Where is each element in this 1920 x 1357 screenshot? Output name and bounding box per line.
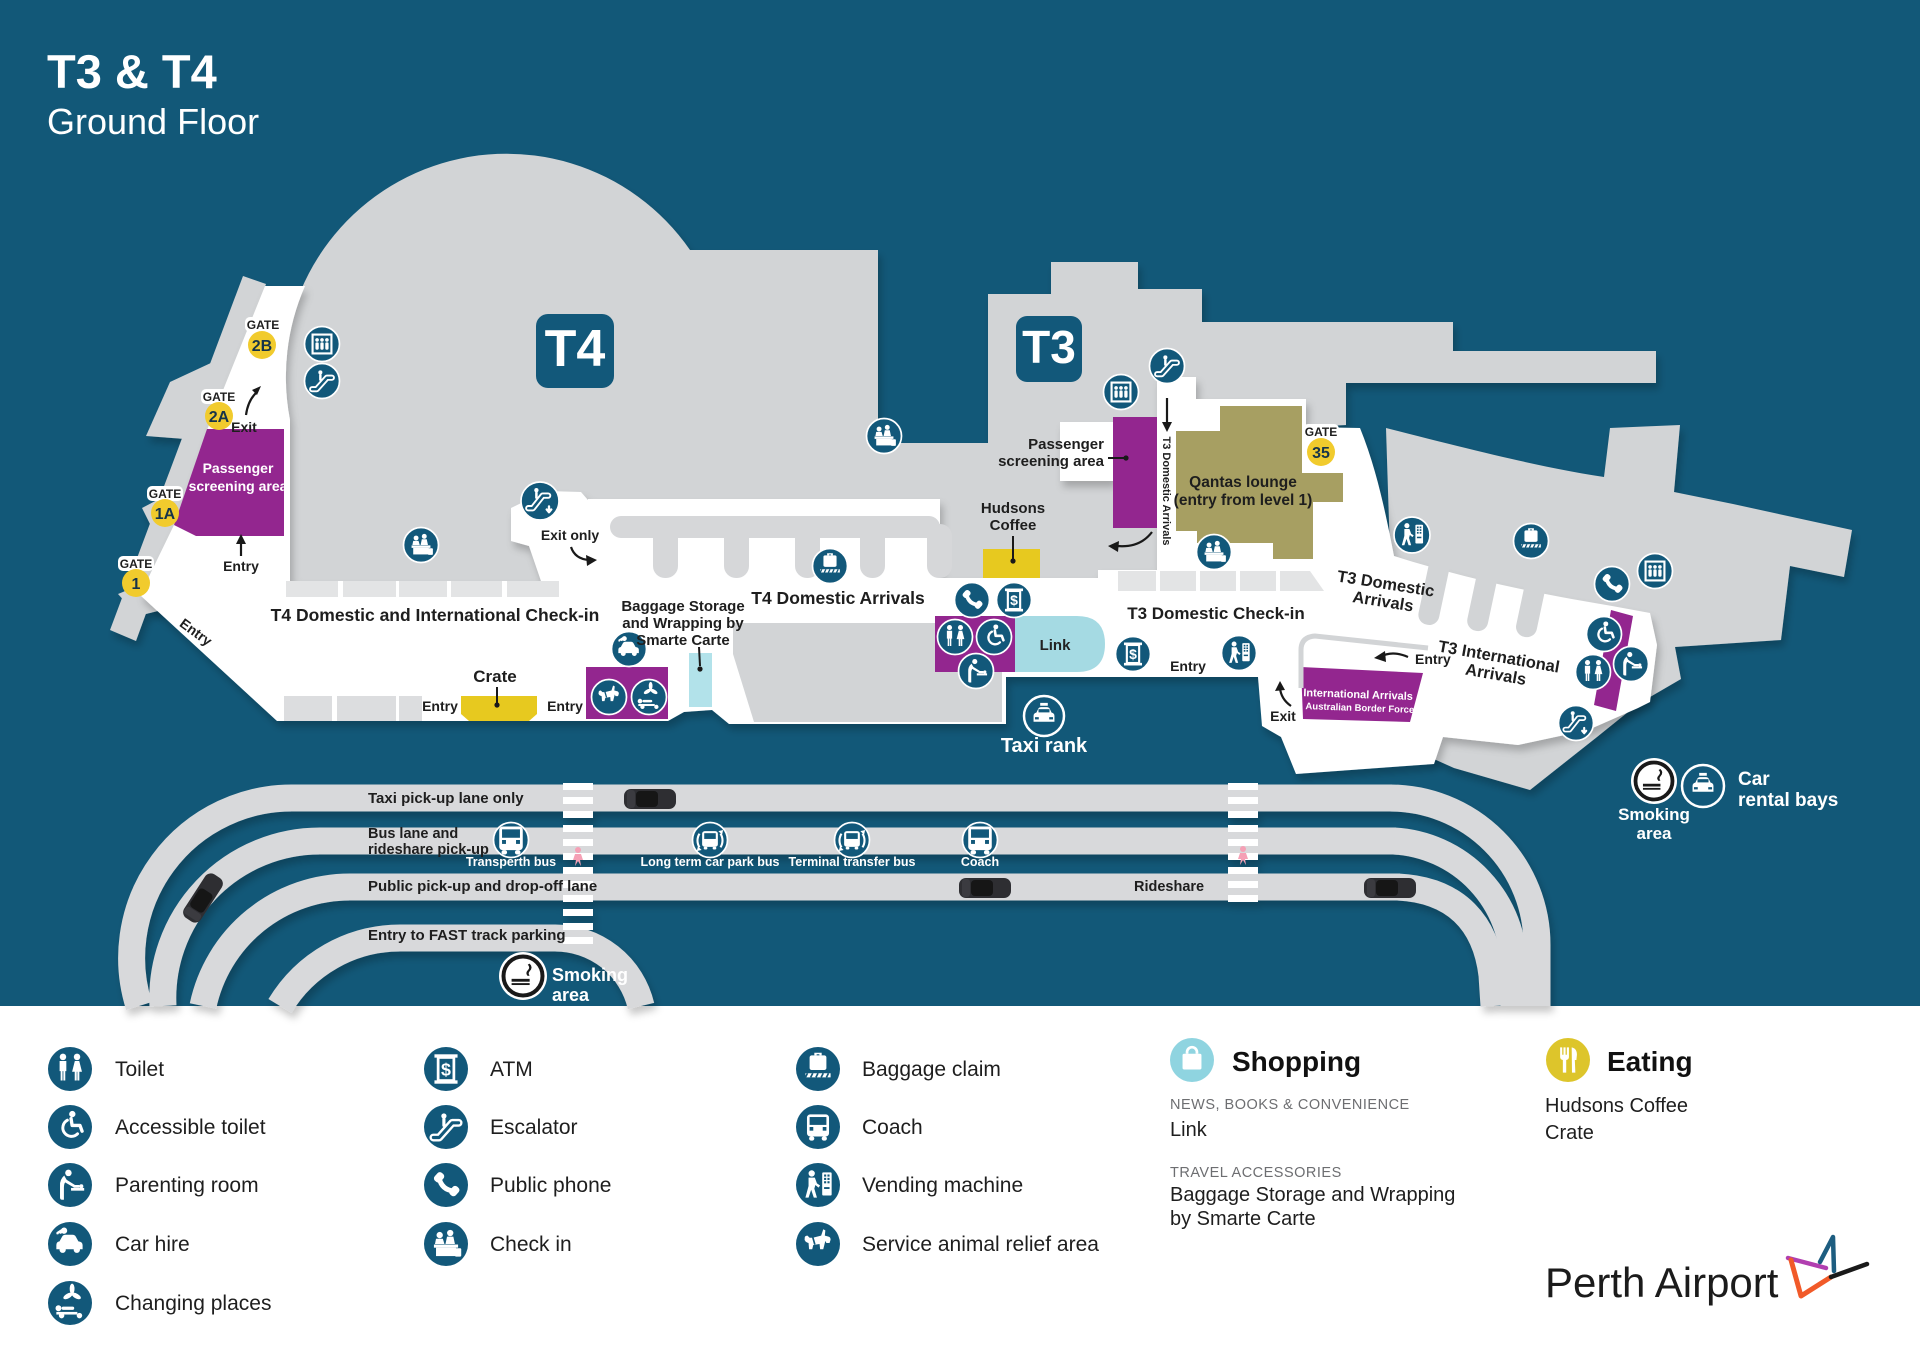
svg-text:Baggage Storage and Wrapping: Baggage Storage and Wrapping (1170, 1184, 1455, 1206)
svg-text:Toilet: Toilet (115, 1058, 164, 1081)
svg-text:by Smarte Carte: by Smarte Carte (1170, 1208, 1316, 1230)
svg-text:Exit only: Exit only (541, 527, 600, 543)
svg-text:and Wrapping by: and Wrapping by (622, 615, 744, 632)
svg-text:Baggage Storage: Baggage Storage (621, 598, 744, 615)
svg-text:screening area: screening area (998, 453, 1105, 470)
svg-text:T3 & T4: T3 & T4 (47, 45, 217, 98)
svg-text:Link: Link (1040, 637, 1071, 654)
svg-text:rental bays: rental bays (1738, 790, 1838, 811)
svg-text:Entry: Entry (1415, 651, 1451, 667)
svg-text:Passenger: Passenger (203, 460, 274, 476)
svg-text:1A: 1A (155, 506, 176, 523)
svg-text:Check in: Check in (490, 1233, 572, 1256)
svg-text:Qantas lounge: Qantas lounge (1189, 474, 1297, 491)
svg-text:Public phone: Public phone (490, 1174, 611, 1197)
svg-text:area: area (1637, 824, 1673, 843)
svg-text:Escalator: Escalator (490, 1116, 578, 1139)
svg-text:T3: T3 (1022, 321, 1076, 373)
svg-text:Rideshare: Rideshare (1134, 879, 1204, 895)
svg-text:Eating: Eating (1607, 1046, 1693, 1077)
svg-text:Smarte Carte: Smarte Carte (636, 632, 729, 649)
svg-text:GATE: GATE (247, 318, 279, 332)
svg-text:Ground Floor: Ground Floor (47, 101, 259, 142)
svg-text:Terminal transfer bus: Terminal transfer bus (789, 855, 916, 869)
svg-text:Changing places: Changing places (115, 1292, 271, 1315)
svg-text:Link: Link (1170, 1119, 1208, 1141)
svg-text:Transperth bus: Transperth bus (466, 855, 556, 869)
svg-text:Entry: Entry (223, 558, 259, 574)
svg-text:Hudsons Coffee: Hudsons Coffee (1545, 1095, 1688, 1117)
svg-text:Crate: Crate (473, 667, 516, 686)
svg-text:1: 1 (132, 576, 141, 593)
svg-text:Accessible toilet: Accessible toilet (115, 1116, 266, 1139)
svg-text:Entry: Entry (1170, 658, 1206, 674)
svg-text:NEWS, BOOKS & CONVENIENCE: NEWS, BOOKS & CONVENIENCE (1170, 1097, 1410, 1113)
svg-text:Entry: Entry (547, 698, 583, 714)
svg-text:T4 Domestic Arrivals: T4 Domestic Arrivals (751, 588, 925, 608)
svg-text:Crate: Crate (1545, 1122, 1594, 1144)
svg-text:GATE: GATE (203, 390, 235, 404)
svg-text:T3 Domestic Check-in: T3 Domestic Check-in (1127, 604, 1305, 623)
svg-text:Taxi rank: Taxi rank (1001, 735, 1088, 757)
svg-text:screening area: screening area (189, 478, 288, 494)
svg-text:Coach: Coach (862, 1116, 923, 1139)
svg-text:2B: 2B (252, 338, 272, 355)
svg-text:Coach: Coach (961, 855, 999, 869)
svg-text:Perth Airport: Perth Airport (1545, 1259, 1779, 1306)
svg-text:Service animal relief area: Service animal relief area (862, 1233, 1099, 1256)
svg-text:Bus lane and: Bus lane and (368, 826, 458, 842)
svg-text:Taxi pick-up lane only: Taxi pick-up lane only (368, 790, 524, 807)
svg-text:Parenting room: Parenting room (115, 1174, 259, 1197)
svg-text:T4 Domestic and International: T4 Domestic and International Check-in (271, 605, 600, 625)
svg-text:Long term car park bus: Long term car park bus (641, 855, 780, 869)
svg-text:Public pick-up and drop-off la: Public pick-up and drop-off lane (368, 878, 597, 895)
svg-text:GATE: GATE (149, 487, 181, 501)
svg-text:2A: 2A (209, 409, 230, 426)
svg-text:35: 35 (1312, 445, 1330, 462)
svg-text:Smoking: Smoking (552, 965, 628, 985)
svg-text:GATE: GATE (120, 557, 152, 571)
svg-text:(entry from level 1): (entry from level 1) (1174, 492, 1313, 509)
svg-text:Car: Car (1738, 769, 1770, 790)
svg-text:Vending machine: Vending machine (862, 1174, 1023, 1197)
svg-text:T3 Domestic Arrivals: T3 Domestic Arrivals (1160, 436, 1172, 545)
svg-text:Passenger: Passenger (1028, 436, 1104, 453)
svg-text:ATM: ATM (490, 1058, 533, 1081)
svg-text:Smoking: Smoking (1618, 805, 1690, 824)
svg-text:Hudsons: Hudsons (981, 500, 1045, 517)
svg-text:T4: T4 (545, 320, 606, 378)
svg-text:GATE: GATE (1305, 425, 1337, 439)
svg-text:Entry to FAST track parking: Entry to FAST track parking (368, 927, 566, 944)
svg-text:Shopping: Shopping (1232, 1046, 1361, 1077)
svg-text:Exit: Exit (231, 419, 257, 435)
svg-text:area: area (552, 985, 590, 1005)
svg-text:Entry: Entry (422, 698, 458, 714)
svg-text:Exit: Exit (1270, 708, 1296, 724)
svg-text:Car hire: Car hire (115, 1233, 190, 1256)
svg-text:Baggage claim: Baggage claim (862, 1058, 1001, 1081)
svg-text:TRAVEL ACCESSORIES: TRAVEL ACCESSORIES (1170, 1165, 1342, 1181)
svg-text:Coffee: Coffee (990, 517, 1037, 534)
